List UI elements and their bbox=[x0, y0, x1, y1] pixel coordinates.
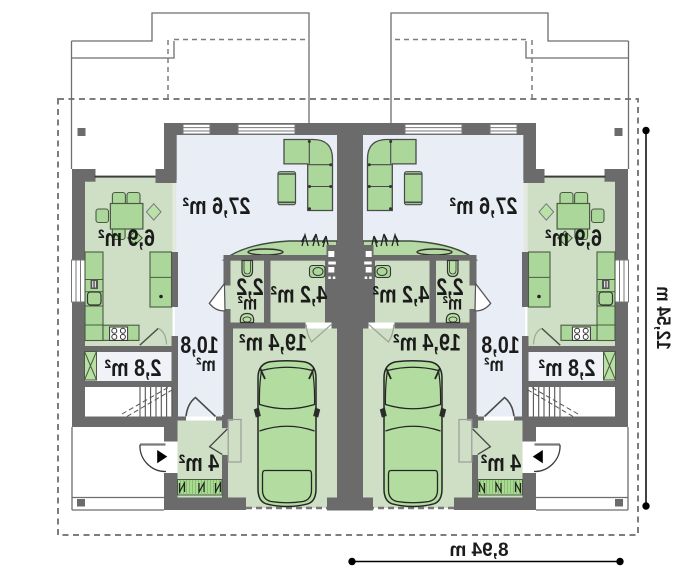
svg-text:6,9 m²: 6,9 m² bbox=[545, 224, 602, 251]
svg-text:m²: m² bbox=[443, 292, 463, 314]
svg-text:19,4 m²: 19,4 m² bbox=[239, 329, 307, 356]
svg-text:19,4 m²: 19,4 m² bbox=[393, 329, 461, 356]
svg-text:12,54 m: 12,54 m bbox=[653, 286, 674, 349]
svg-text:4,2 m²: 4,2 m² bbox=[271, 281, 328, 308]
svg-text:27,6 m²: 27,6 m² bbox=[183, 192, 251, 219]
svg-text:4,2 m²: 4,2 m² bbox=[373, 281, 430, 308]
svg-text:4 m²: 4 m² bbox=[481, 449, 521, 476]
svg-text:m²: m² bbox=[238, 292, 258, 314]
svg-text:m²: m² bbox=[484, 354, 504, 376]
svg-text:8,94 m: 8,94 m bbox=[449, 540, 508, 561]
svg-text:2,8 m²: 2,8 m² bbox=[105, 354, 162, 381]
svg-text:2,8 m²: 2,8 m² bbox=[539, 354, 596, 381]
svg-text:4 m²: 4 m² bbox=[179, 449, 219, 476]
svg-text:m²: m² bbox=[196, 354, 216, 376]
svg-text:27,6 m²: 27,6 m² bbox=[450, 192, 518, 219]
svg-text:6,9 m²: 6,9 m² bbox=[98, 224, 155, 251]
